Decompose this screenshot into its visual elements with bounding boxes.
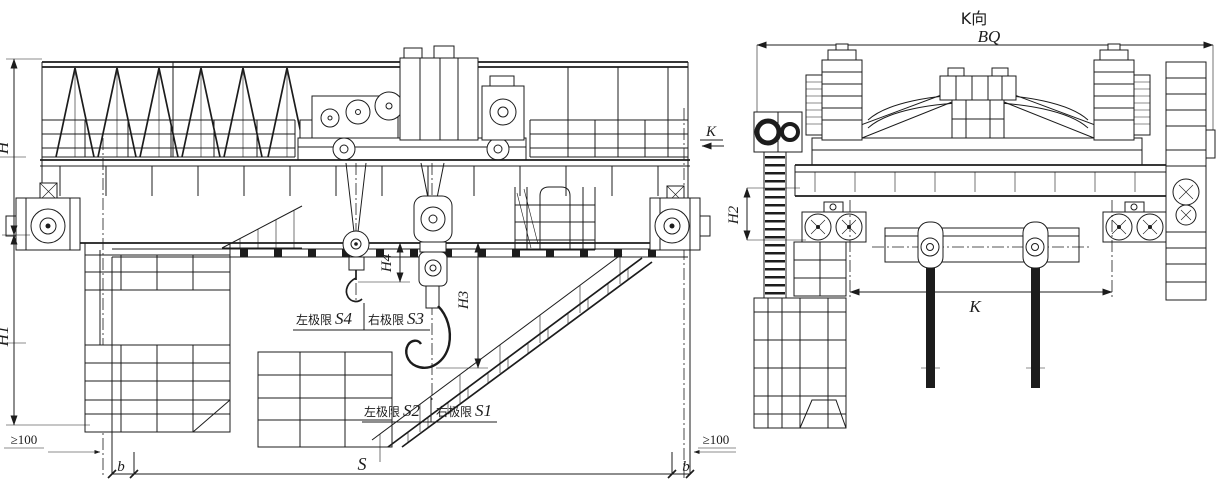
dim-H4-label: H4 [379,253,395,273]
dim-b-right-label: b [682,459,690,475]
view-arrow-K-label: K [705,124,717,140]
dim-K-label: K [968,297,982,316]
crane-technical-drawing: H H1 H4 H3 左极限S4 右极限S3 左极限S2 右极限S1 [0,0,1216,483]
dim-H1-label: H1 [0,326,12,348]
dim-min-clearance-left: ≥100 [11,432,38,447]
buffer-left [40,183,57,200]
dim-min-clearance-right: ≥100 [703,432,730,447]
dim-BQ-label: BQ [978,27,1001,46]
dim-H3-label: H3 [456,291,472,310]
dim-H-label: H [0,140,12,155]
dim-b-left-label: b [117,459,125,475]
side-view-title: K向 [961,9,988,28]
dim-H2-label: H2 [726,205,742,225]
dim-S-label: S [358,454,367,474]
end-truck-left [6,198,80,250]
